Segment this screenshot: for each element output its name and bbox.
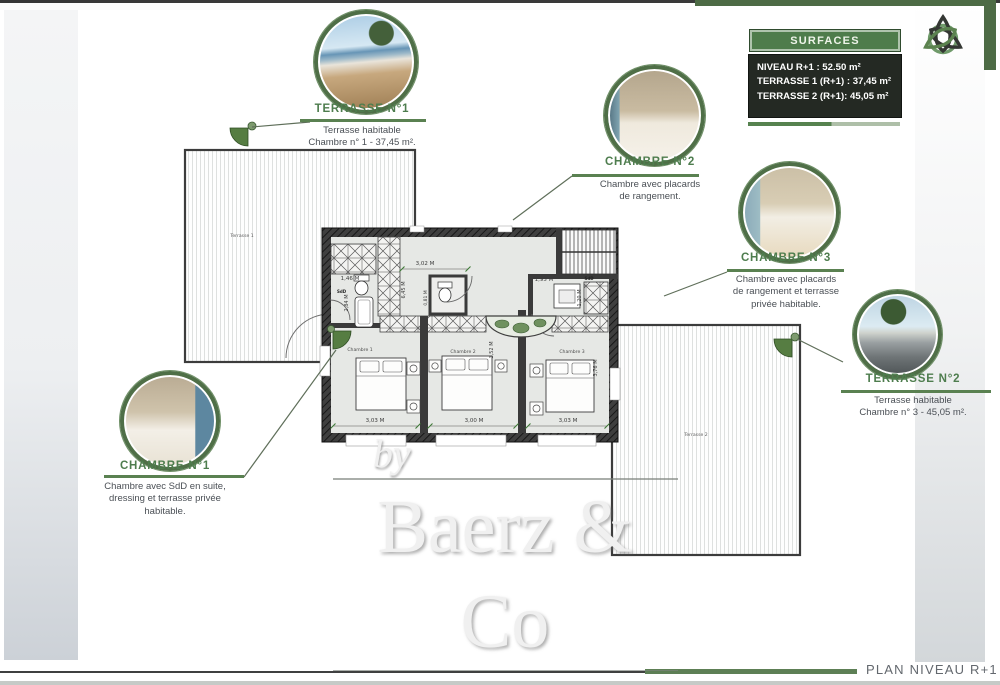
chambre-2-photo bbox=[604, 65, 705, 166]
terrasse-2-underline bbox=[841, 390, 991, 393]
chambre-1-title: CHAMBRE N°1 bbox=[85, 460, 245, 472]
footer-rule-dark bbox=[0, 671, 645, 673]
terrasse-1-title: TERRASSE N°1 bbox=[282, 103, 442, 115]
terrasse-2-title: TERRASSE N°2 bbox=[833, 373, 993, 385]
callout-leader-lines bbox=[0, 0, 1000, 685]
footer-rule-green bbox=[645, 669, 857, 674]
chambre-3-desc: Chambre avec placards de rangement et te… bbox=[706, 274, 866, 311]
chambre-3-title: CHAMBRE N°3 bbox=[706, 252, 866, 264]
plan-level-label: PLAN NIVEAU R+1 bbox=[866, 662, 1000, 677]
terrasse-2-photo bbox=[853, 290, 942, 379]
chambre-2-underline bbox=[572, 174, 699, 177]
chambre-1-photo bbox=[120, 371, 220, 471]
chambre-1-underline bbox=[104, 475, 244, 478]
terrasse-1-desc: Terrasse habitable Chambre n° 1 - 37,45 … bbox=[282, 125, 442, 150]
terrasse-2-desc: Terrasse habitable Chambre n° 3 - 45,05 … bbox=[833, 395, 993, 420]
chambre-2-title: CHAMBRE N°2 bbox=[570, 156, 730, 168]
terrasse-1-photo bbox=[314, 10, 418, 114]
chambre-3-underline bbox=[727, 269, 844, 272]
chambre-3-photo bbox=[739, 162, 840, 263]
chambre-2-desc: Chambre avec placards de rangement. bbox=[570, 179, 730, 204]
terrasse-1-underline bbox=[300, 119, 426, 122]
brochure-page: SURFACES NIVEAU R+1 : 52.50 m² TERRASSE … bbox=[0, 0, 1000, 685]
chambre-1-desc: Chambre avec SdD en suite, dressing et t… bbox=[85, 481, 245, 518]
